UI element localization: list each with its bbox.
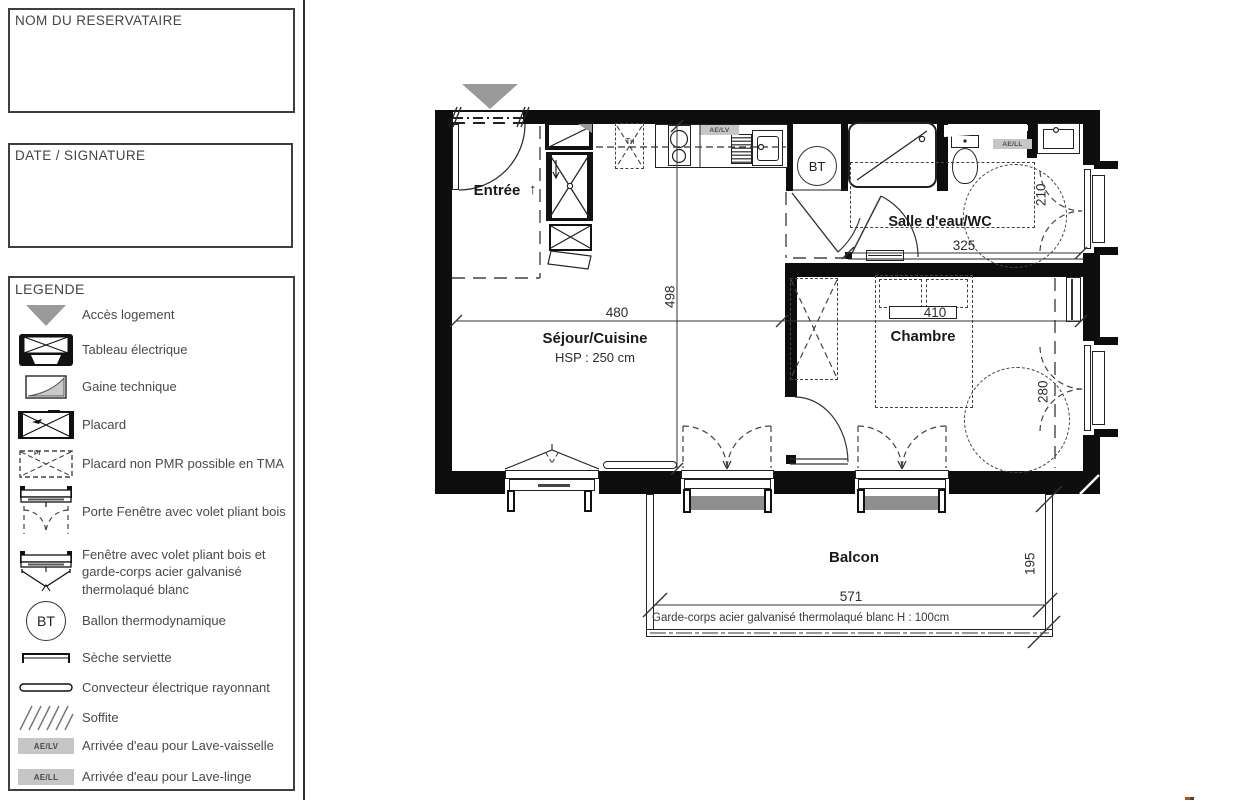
legend-item: Accès logement <box>10 300 288 330</box>
window2-v-mark <box>723 461 731 469</box>
reservataire-label: NOM DU RESERVATAIRE <box>10 10 293 31</box>
legend-item: Porte Fenêtre avec volet pliant bois <box>10 486 288 538</box>
hand-basin-inner <box>1043 129 1074 149</box>
dim-sejour-depth: 498 <box>663 280 677 314</box>
water-inlet-ll-icon: AE/LL <box>10 769 82 785</box>
cooktop <box>668 125 691 166</box>
electrical-panel-icon <box>10 333 82 367</box>
placard-box <box>546 152 593 221</box>
entrance-dashdot-line <box>453 117 523 119</box>
door-hinge-block <box>786 455 796 464</box>
shutter-cap <box>1094 429 1118 437</box>
date-signature-box[interactable]: DATE / SIGNATURE <box>8 143 293 248</box>
window-sejour-frame <box>505 470 599 479</box>
bt-tank: BT <box>797 146 837 186</box>
access-triangle-icon <box>10 305 82 326</box>
room-label-sejour: Séjour/Cuisine <box>515 331 675 348</box>
window1-v-mark <box>546 453 558 463</box>
room-label-salle-eau: Salle d'eau/WC <box>870 215 1010 231</box>
wall-niche-line <box>1071 279 1073 320</box>
window-frame-chambre <box>1084 345 1091 431</box>
shutter-panel <box>860 496 944 510</box>
tri-box <box>615 123 644 169</box>
window3-opening-arcs <box>858 426 946 470</box>
dim-chambre-width: 410 <box>919 306 951 320</box>
wc-tank <box>951 135 979 148</box>
soffit-icon <box>10 704 82 732</box>
tri-label: Tri <box>617 137 643 146</box>
legend-item: Soffite <box>10 702 288 734</box>
room-label-balcon: Balcon <box>823 550 885 567</box>
ae-ll-badge: AE/LL <box>993 139 1032 149</box>
door-hinge <box>845 252 852 259</box>
room-label-chambre: Chambre <box>883 329 963 346</box>
bt-circle-icon: BT <box>10 601 82 641</box>
dishwasher <box>731 134 752 164</box>
bt-door-leaf <box>792 193 838 252</box>
room-label-entree: Entrée <box>462 183 532 200</box>
wall-left <box>435 110 452 494</box>
bt-legend-text: BT <box>26 601 66 641</box>
balcony-rail-bottom <box>646 629 1053 637</box>
dim-sejour-width: 480 <box>600 306 634 320</box>
pi-label: PI <box>34 450 40 457</box>
placard-open-flap <box>548 251 591 269</box>
legend-item: Fenêtre avec volet pliant bois et garde-… <box>10 542 288 602</box>
legend-item: AE/LV Arrivée d'eau pour Lave-vaisselle <box>10 735 288 757</box>
legend-item: PI Placard non PMR possible en TMA <box>10 447 288 481</box>
towel-dryer-icon <box>10 650 82 666</box>
window-sejour-inner-line <box>538 484 570 487</box>
closet-non-pmr-icon: PI <box>10 449 82 479</box>
legend-item: AE/LL Arrivée d'eau pour Lave-linge <box>10 766 288 788</box>
ae-lv-badge: AE/LV <box>700 125 739 135</box>
chambre-door-arc <box>795 397 848 462</box>
window-shutter-salle-eau <box>1092 175 1105 243</box>
portefenetre-chambre-frame <box>855 470 949 479</box>
portefenetre-chambre-box <box>858 479 946 489</box>
access-triangle-icon <box>462 84 518 109</box>
window-leg <box>584 490 592 512</box>
legend-item: Placard <box>10 408 288 442</box>
sejour-hsp-label: HSP : 250 cm <box>515 350 675 365</box>
dim-balcon-width: 571 <box>834 590 868 604</box>
sidebar-divider <box>303 0 305 800</box>
entrance-door-arc <box>459 124 525 190</box>
water-inlet-lv-icon: AE/LV <box>10 738 82 754</box>
entry-direction-arrow: ↑ <box>529 181 537 198</box>
legend-item: BT Ballon thermodynamique <box>10 600 288 642</box>
chambre-placard <box>790 278 838 380</box>
dim-chambre-depth: 280 <box>1036 375 1050 409</box>
wall-bt-closet-right <box>841 124 848 191</box>
dim-salle-eau-width: 325 <box>947 239 981 253</box>
window-shutter-chambre <box>1092 351 1105 425</box>
bed-pillow <box>926 279 968 308</box>
placard-lower-box <box>549 224 592 251</box>
gaine-technique-box <box>545 121 593 150</box>
kitchen-sink-basin <box>757 136 779 161</box>
french-window-icon <box>10 486 82 538</box>
date-signature-label: DATE / SIGNATURE <box>10 145 291 166</box>
chambre-door-leaf <box>790 459 848 464</box>
portefenetre-sejour-frame <box>681 470 774 479</box>
garde-corps-note: Garde-corps acier galvanisé thermolaqué … <box>652 612 1047 624</box>
legend-item: Convecteur électrique rayonnant <box>10 676 288 700</box>
shutter-panel <box>686 496 769 510</box>
window2-opening-arcs <box>683 426 771 470</box>
convector <box>603 461 677 469</box>
window-leg <box>683 489 691 513</box>
window1-shutter-triangle <box>505 450 599 469</box>
pmr-circle-chambre <box>964 367 1070 473</box>
legend-item: Gaine technique <box>10 372 288 402</box>
legend-title: LEGENDE <box>10 278 293 300</box>
shutter-cap <box>1094 337 1118 345</box>
legend-item: Tableau électrique <box>10 332 288 368</box>
floor-plan-page: NOM DU RESERVATAIRE DATE / SIGNATURE LEG… <box>0 0 1235 800</box>
wall-niche <box>1066 277 1081 322</box>
wall-top <box>435 110 1100 124</box>
legend-item: Sèche serviette <box>10 646 288 670</box>
reservataire-box[interactable]: NOM DU RESERVATAIRE <box>8 8 295 113</box>
dim-salle-eau-depth: 210 <box>1034 178 1048 212</box>
entrance-door-leaf <box>452 124 459 190</box>
window-frame-salle-eau <box>1084 169 1091 249</box>
entrance-dash-line <box>453 122 523 124</box>
bed-pillow <box>879 279 922 308</box>
window-leg <box>857 489 865 513</box>
window-guardrail-icon <box>10 549 82 595</box>
technical-duct-icon <box>10 375 82 399</box>
window-leg <box>938 489 946 513</box>
window3-v-mark <box>898 461 906 469</box>
closet-icon <box>10 410 82 440</box>
towel-dryer-line <box>868 255 902 256</box>
window-leg <box>764 489 772 513</box>
shutter-cap <box>1094 247 1118 255</box>
convector-icon <box>10 681 82 695</box>
portefenetre-sejour-box <box>684 479 771 489</box>
window-leg <box>507 490 515 512</box>
entrance-threshold-line <box>453 110 523 112</box>
shutter-cap <box>1094 161 1118 169</box>
dim-balcon-depth: 195 <box>1023 547 1037 581</box>
